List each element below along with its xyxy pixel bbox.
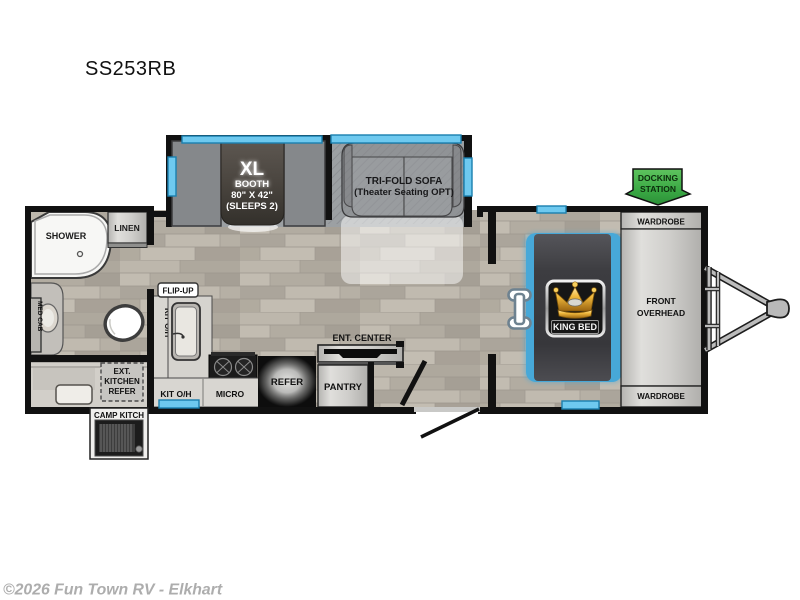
svg-text:FLIP-UP: FLIP-UP [162, 287, 194, 296]
svg-text:REFER: REFER [271, 377, 303, 388]
svg-text:(Theater Seating OPT): (Theater Seating OPT) [354, 187, 454, 198]
svg-text:KING BED: KING BED [553, 322, 598, 332]
svg-text:STATION: STATION [640, 184, 676, 194]
svg-text:©2026 Fun Town RV - Elkhart: ©2026 Fun Town RV - Elkhart [3, 582, 223, 599]
svg-text:CAMP KITCH: CAMP KITCH [94, 411, 144, 420]
svg-text:MICRO: MICRO [216, 389, 245, 399]
svg-text:MED CAB: MED CAB [36, 301, 43, 332]
svg-text:FRONT: FRONT [646, 296, 676, 306]
svg-text:WARDROBE: WARDROBE [637, 392, 685, 401]
svg-text:SS253RB: SS253RB [85, 58, 176, 80]
svg-text:SHOWER: SHOWER [46, 231, 87, 241]
svg-text:PANTRY: PANTRY [324, 382, 363, 393]
svg-text:ENT. CENTER: ENT. CENTER [332, 333, 392, 343]
svg-text:XL: XL [240, 159, 265, 180]
svg-text:BOOTH: BOOTH [235, 179, 269, 190]
svg-text:WARDROBE: WARDROBE [637, 218, 685, 227]
svg-text:(SLEEPS 2): (SLEEPS 2) [226, 201, 278, 212]
svg-text:OVERHEAD: OVERHEAD [637, 308, 685, 318]
svg-text:DOCKING: DOCKING [638, 173, 679, 183]
svg-text:TRI-FOLD SOFA: TRI-FOLD SOFA [366, 176, 443, 187]
svg-text:KIT O/H: KIT O/H [160, 389, 191, 399]
svg-text:80" X 42": 80" X 42" [231, 190, 273, 201]
svg-text:REFER: REFER [108, 387, 135, 396]
svg-text:EXT.: EXT. [114, 367, 131, 376]
svg-text:LINEN: LINEN [114, 223, 140, 233]
svg-text:KITCHEN: KITCHEN [104, 377, 140, 386]
